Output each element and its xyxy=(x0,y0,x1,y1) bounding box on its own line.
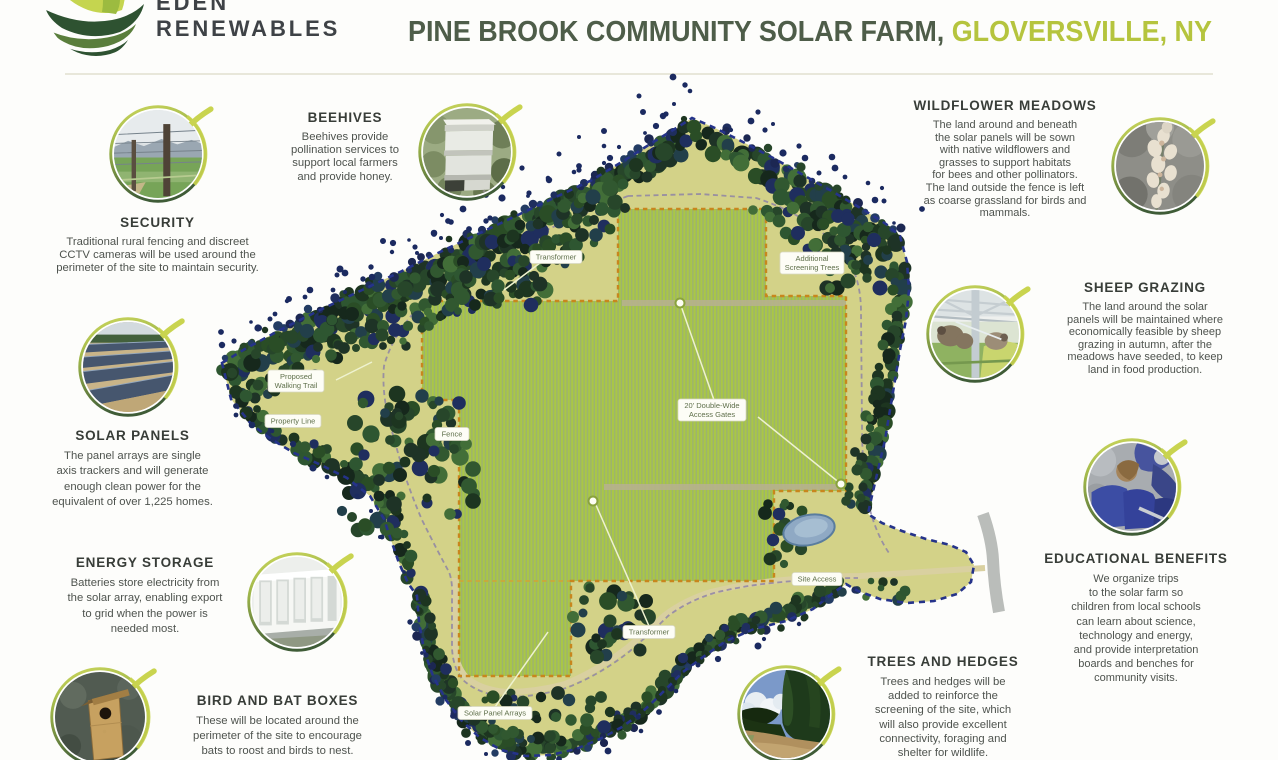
svg-text:Solar Panel Arrays: Solar Panel Arrays xyxy=(464,709,526,718)
svg-text:Fence: Fence xyxy=(442,430,463,439)
svg-text:Additional: Additional xyxy=(796,254,829,263)
svg-text:Access Gates: Access Gates xyxy=(689,410,736,419)
svg-text:Transformer: Transformer xyxy=(536,253,577,262)
svg-text:20' Double-Wide: 20' Double-Wide xyxy=(684,401,739,410)
svg-text:Property Line: Property Line xyxy=(271,417,316,426)
svg-text:Screening Trees: Screening Trees xyxy=(785,263,840,272)
svg-text:Site Access: Site Access xyxy=(798,575,837,584)
svg-text:Transformer: Transformer xyxy=(629,628,670,637)
svg-text:Proposed: Proposed xyxy=(280,372,312,381)
svg-text:Walking Trail: Walking Trail xyxy=(275,381,318,390)
